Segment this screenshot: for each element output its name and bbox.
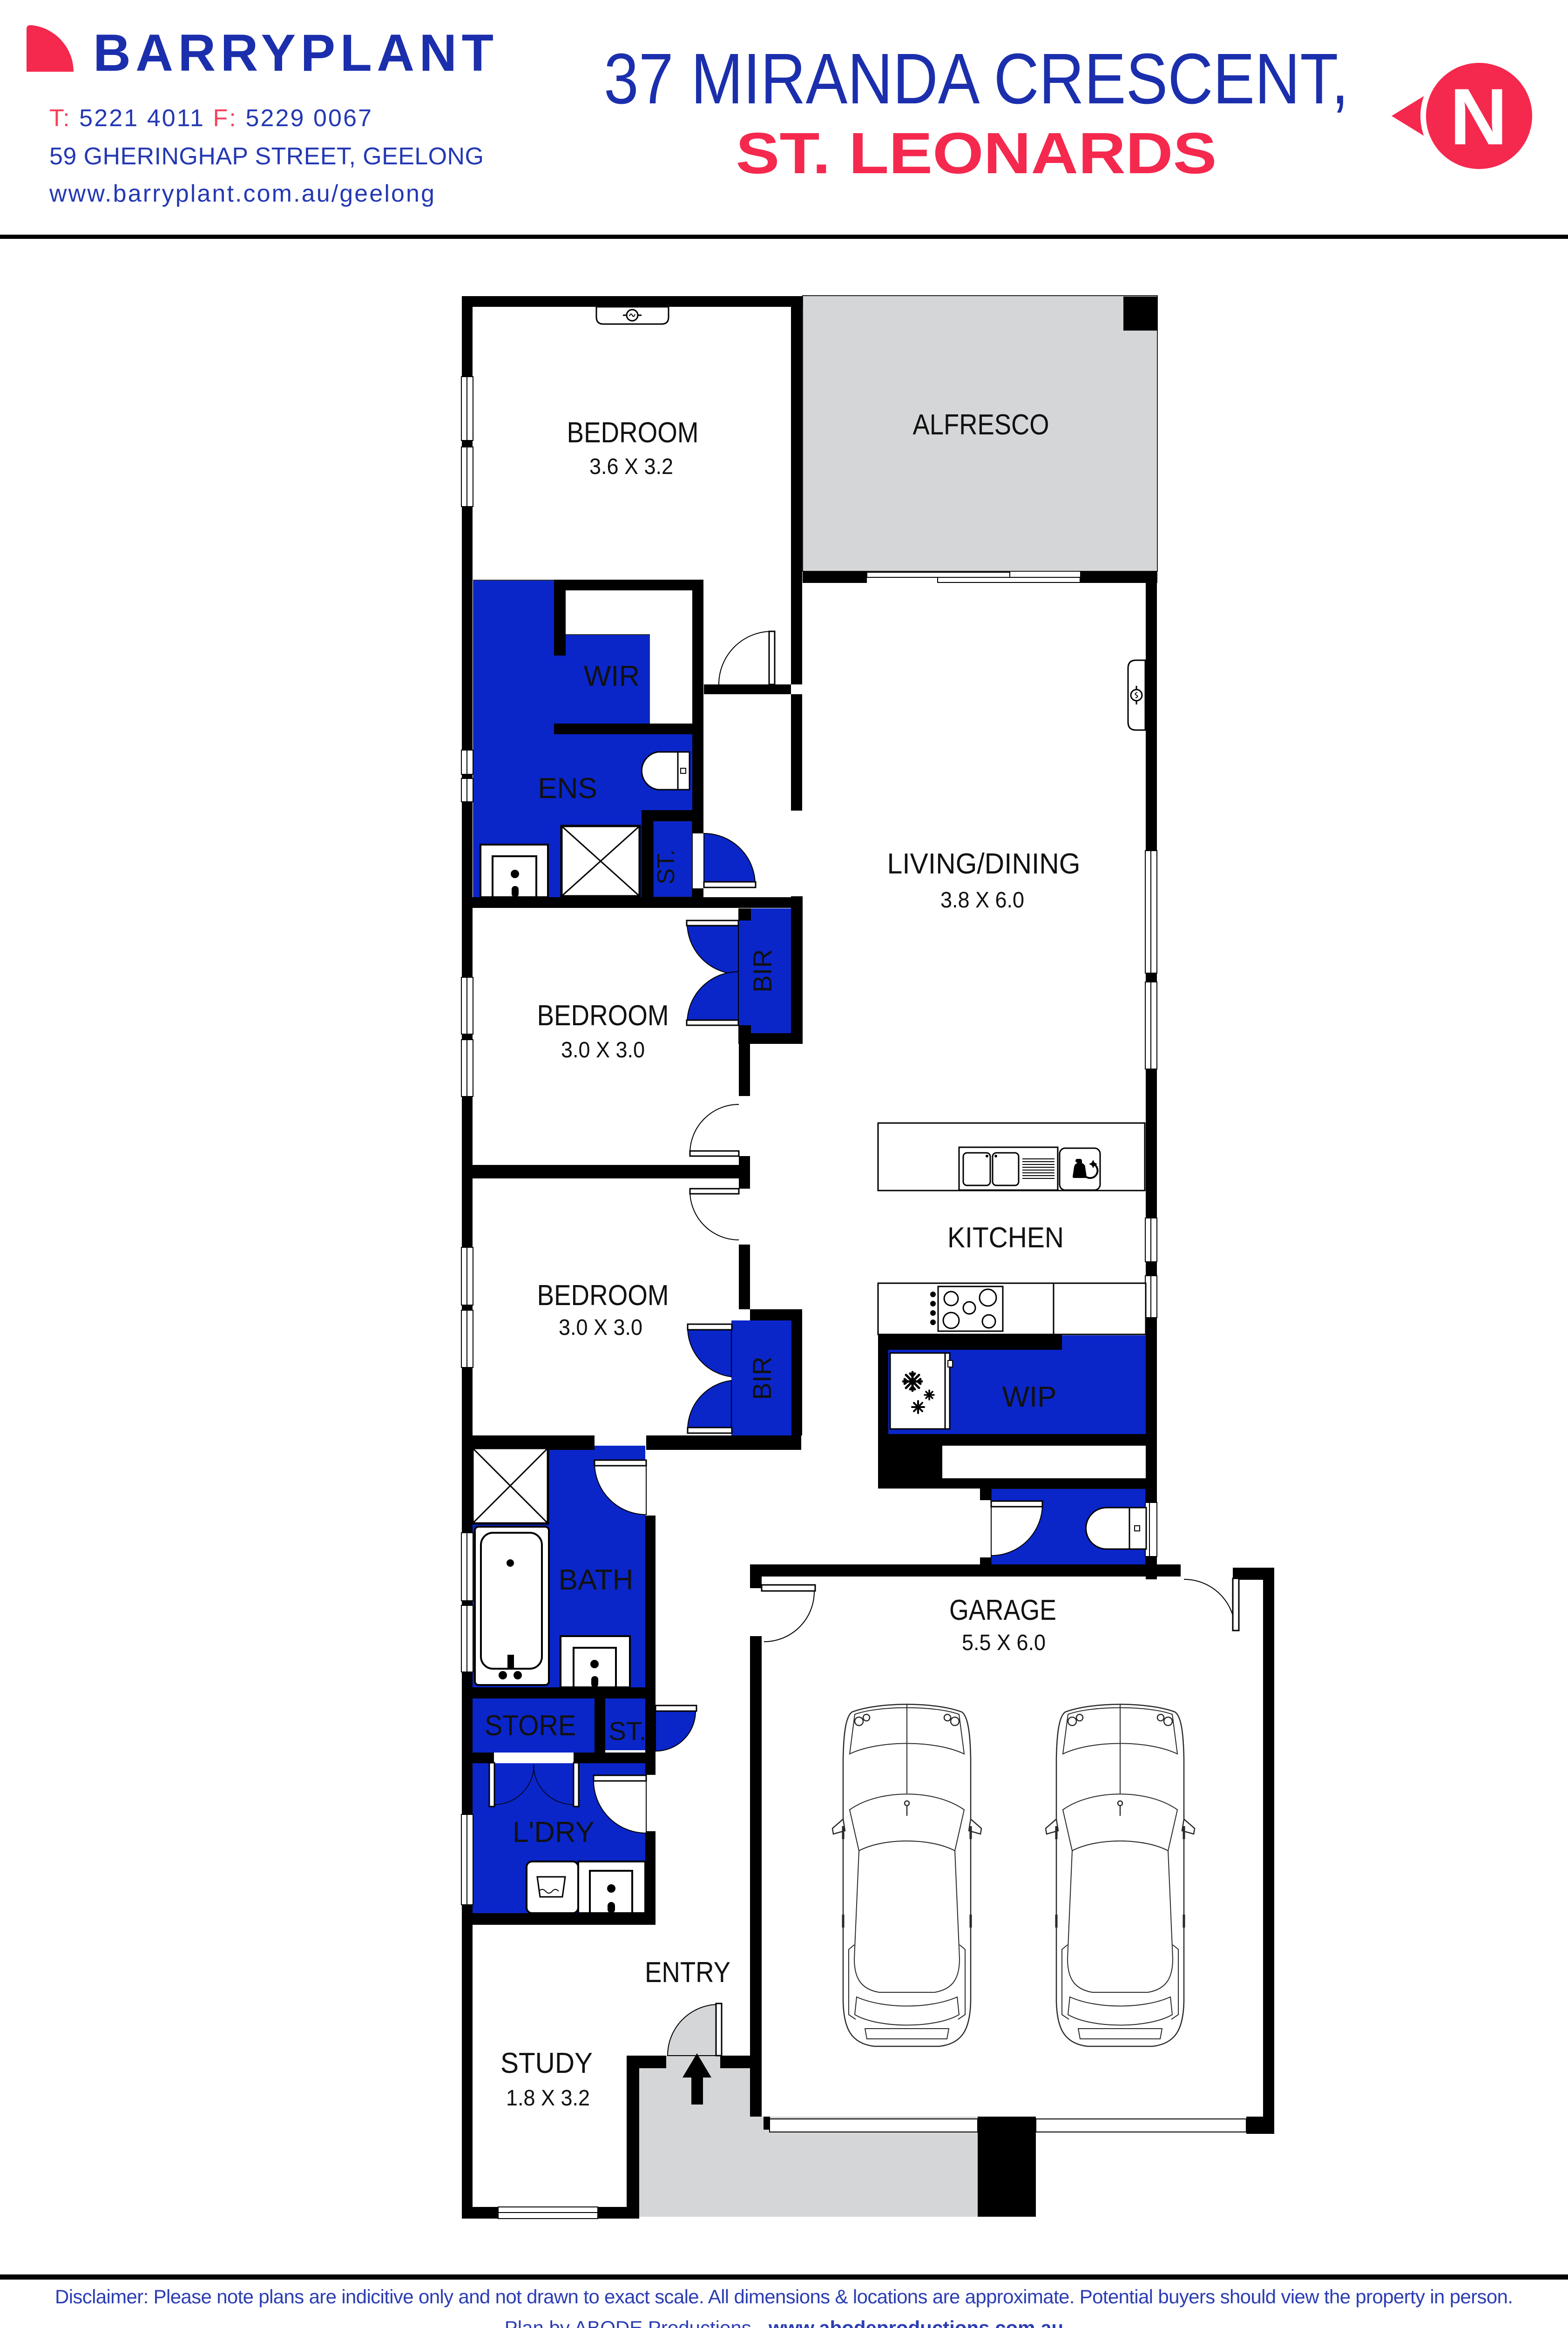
svg-text:STORE: STORE <box>485 1710 576 1742</box>
svg-text:WIP: WIP <box>1002 1381 1056 1413</box>
svg-text:BIR: BIR <box>747 1356 777 1400</box>
svg-text:STUDY: STUDY <box>500 2047 593 2079</box>
svg-text:N: N <box>1450 72 1507 162</box>
svg-text:1.8 X 3.2: 1.8 X 3.2 <box>506 2086 590 2111</box>
svg-text:BEDROOM: BEDROOM <box>537 1000 669 1032</box>
svg-text:BATH: BATH <box>559 1564 634 1596</box>
svg-text:3.6 X 3.2: 3.6 X 3.2 <box>589 454 673 479</box>
svg-text:59 GHERINGHAP STREET, GEELONG: 59 GHERINGHAP STREET, GEELONG <box>49 143 484 170</box>
svg-text:ST.: ST. <box>609 1716 647 1746</box>
svg-text:BIR: BIR <box>748 949 777 992</box>
svg-text:3.0 X 3.0: 3.0 X 3.0 <box>561 1038 645 1062</box>
svg-text:3.0 X 3.0: 3.0 X 3.0 <box>559 1315 642 1340</box>
svg-text:ST. LEONARDS: ST. LEONARDS <box>736 121 1217 186</box>
svg-text:3.8 X 6.0: 3.8 X 6.0 <box>940 888 1024 913</box>
svg-text:KITCHEN: KITCHEN <box>947 1222 1064 1254</box>
svg-text:Plan by ABODE Productions - ww: Plan by ABODE Productions - www.abodepro… <box>505 2317 1063 2328</box>
svg-text:www.barryplant.com.au/geelong: www.barryplant.com.au/geelong <box>49 180 434 207</box>
svg-text:Disclaimer: Please note plans: Disclaimer: Please note plans are indici… <box>55 2286 1513 2308</box>
svg-text:ALFRESCO: ALFRESCO <box>913 409 1049 441</box>
svg-text:L'DRY: L'DRY <box>513 1816 595 1848</box>
svg-text:GARAGE: GARAGE <box>949 1594 1056 1626</box>
svg-text:ENTRY: ENTRY <box>645 1956 730 1989</box>
svg-text:LIVING/DINING: LIVING/DINING <box>887 848 1081 880</box>
svg-text:5.5 X 6.0: 5.5 X 6.0 <box>962 1631 1046 1655</box>
svg-text:BEDROOM: BEDROOM <box>537 1279 669 1312</box>
svg-text:T: 5221 4011 F: 5229 0067: T: 5221 4011 F: 5229 0067 <box>49 105 372 132</box>
svg-text:ENS: ENS <box>538 772 597 805</box>
svg-text:WIR: WIR <box>584 660 640 692</box>
svg-text:BEDROOM: BEDROOM <box>567 417 699 449</box>
svg-text:ST.: ST. <box>653 849 680 884</box>
svg-text:BARRYPLANT: BARRYPLANT <box>93 24 493 82</box>
svg-text:37 MIRANDA CRESCENT,: 37 MIRANDA CRESCENT, <box>604 39 1349 119</box>
